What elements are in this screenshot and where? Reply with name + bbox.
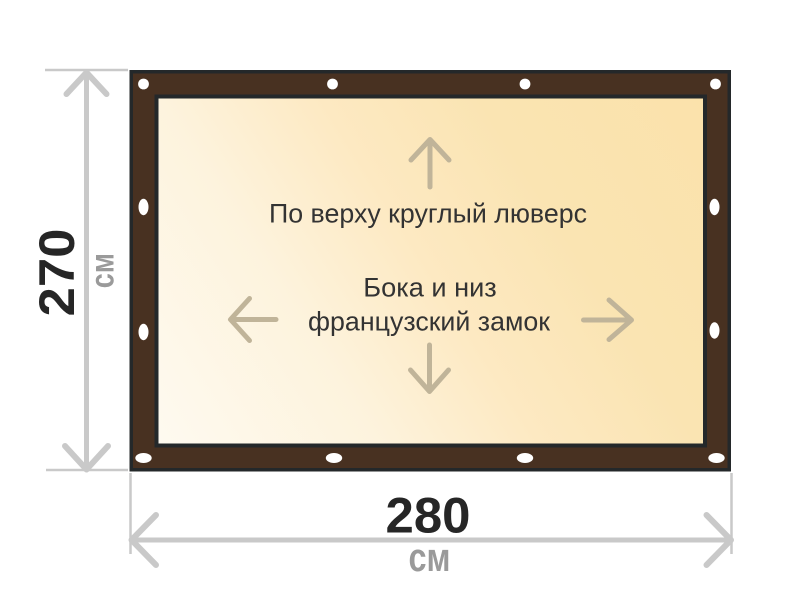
svg-text:см: см xyxy=(409,536,451,580)
svg-text:270: 270 xyxy=(29,229,85,317)
svg-text:Бока и низ: Бока и низ xyxy=(363,273,497,303)
svg-text:французский замок: французский замок xyxy=(308,306,550,336)
svg-text:По верху круглый люверс: По верху круглый люверс xyxy=(269,199,587,229)
svg-text:см: см xyxy=(84,253,121,288)
